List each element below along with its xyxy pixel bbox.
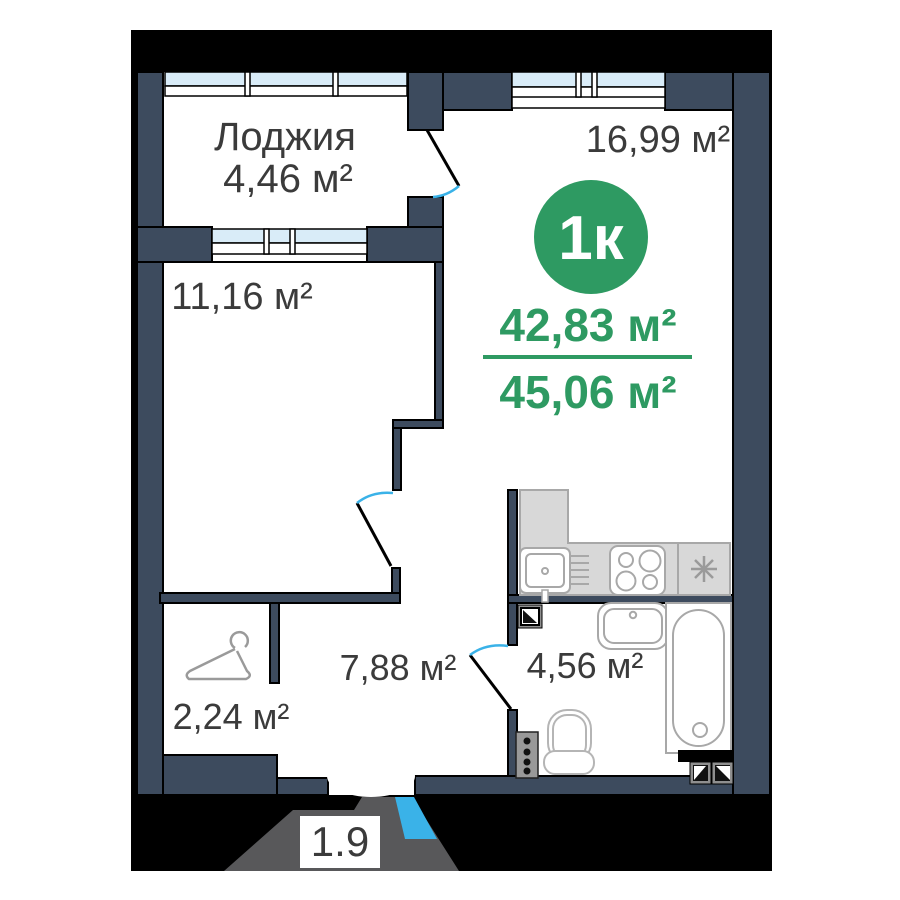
ventilation-shaft-icon	[518, 605, 542, 628]
entry-door-swing	[327, 755, 415, 797]
living-room-window	[512, 72, 665, 87]
bedroom-area-label: 11,16 м²	[171, 276, 313, 318]
living-area-value: 42,83 м²	[499, 299, 676, 351]
hallway-area-label: 7,88 м²	[340, 647, 457, 688]
loggia-window	[165, 72, 407, 86]
living-room-area-label: 16,99 м²	[586, 119, 730, 161]
floor-plan-page: 1.9 Лоджия 4,46 м² 11,16 м² 16,99 м² 7,8…	[0, 0, 900, 900]
washbasin-icon	[598, 603, 668, 649]
toilet-icon	[544, 710, 594, 774]
total-area-value: 45,06 м²	[499, 366, 676, 418]
entry-label: 1.9	[311, 818, 369, 865]
bathroom-area-label: 4,56 м²	[527, 645, 644, 686]
loggia-name-label: Лоджия	[214, 115, 356, 159]
apartment-type-label: 1к	[558, 204, 624, 273]
bathtub-icon	[666, 603, 731, 753]
stove-icon	[610, 546, 665, 595]
pipe-riser-icon	[516, 732, 538, 778]
floor-plan-svg: 1.9 Лоджия 4,46 м² 11,16 м² 16,99 м² 7,8…	[0, 0, 900, 900]
wardrobe-area-label: 2,24 м²	[173, 696, 290, 737]
loggia-area-label: 4,46 м²	[223, 157, 353, 201]
